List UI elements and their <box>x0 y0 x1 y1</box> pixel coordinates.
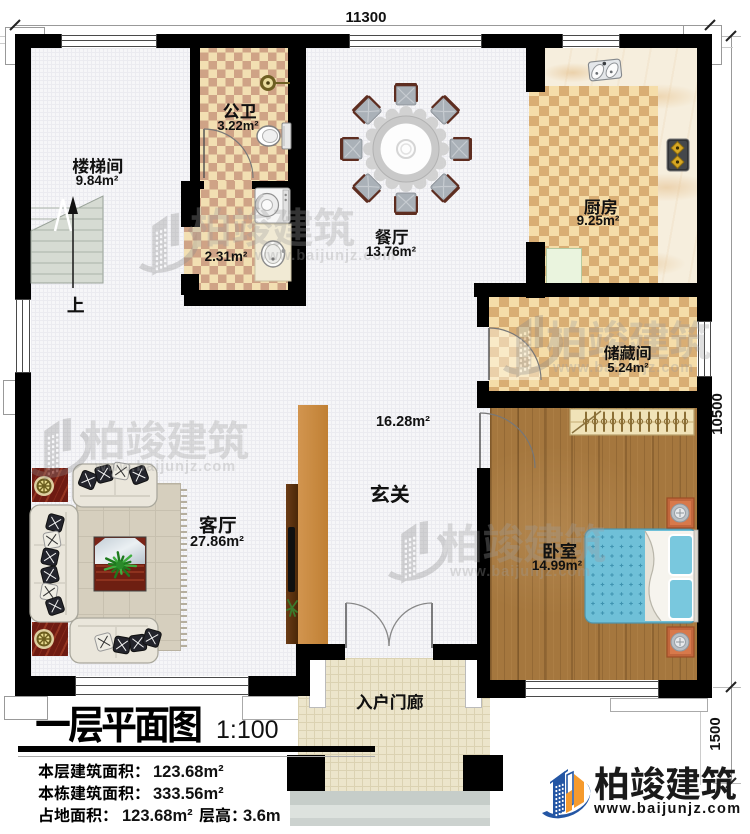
svg-text:2.31m²: 2.31m² <box>205 249 248 264</box>
svg-text:9.84m²: 9.84m² <box>76 173 119 188</box>
svg-text:10500: 10500 <box>709 393 726 435</box>
svg-text:14.99m²: 14.99m² <box>532 558 583 573</box>
svg-text:16.28m²: 16.28m² <box>376 414 430 430</box>
svg-text:www.baijunjz.com: www.baijunjz.com <box>94 459 236 475</box>
svg-text:333.56m²: 333.56m² <box>153 785 224 803</box>
svg-text:27.86m²: 27.86m² <box>190 534 244 550</box>
svg-text:www.baijunjz.com: www.baijunjz.com <box>593 801 742 817</box>
svg-text:123.68m²: 123.68m² <box>153 763 224 781</box>
svg-text:1:100: 1:100 <box>216 716 279 744</box>
svg-text:13.76m²: 13.76m² <box>366 244 417 259</box>
svg-text:3.22m²: 3.22m² <box>217 118 259 133</box>
svg-text:1500: 1500 <box>707 717 724 750</box>
svg-text:123.68m²: 123.68m² <box>122 807 193 825</box>
svg-text:11300: 11300 <box>346 9 387 26</box>
svg-text:5.24m²: 5.24m² <box>607 360 649 375</box>
svg-text:3.6m: 3.6m <box>243 807 281 825</box>
svg-text:9.25m²: 9.25m² <box>577 213 620 228</box>
